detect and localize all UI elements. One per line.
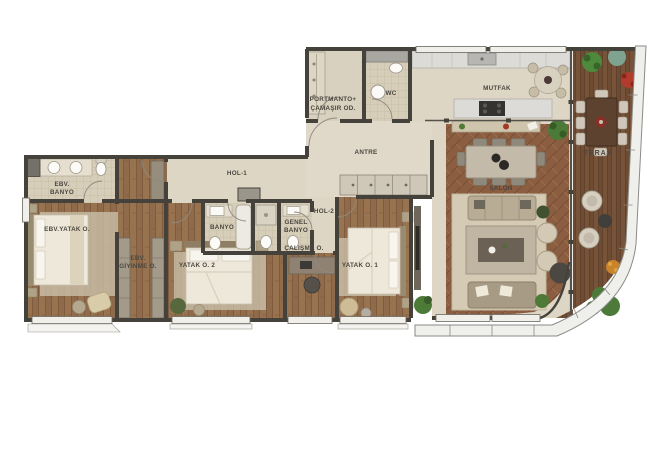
sink-icon [70,162,82,174]
lounge-cushion [584,233,595,244]
pillow [389,261,398,288]
room-label-antre: ANTRE [355,149,378,156]
table-tray [478,238,524,262]
pouf [194,305,205,316]
toilet-icon [390,63,403,73]
plant-icon [170,298,186,314]
desk-chair [304,277,320,293]
plant-icon [459,124,465,130]
room-label-mutfak: MUTFAK [483,85,511,92]
room-label-ebv-giyinme-2: GİYİNME O. [119,262,157,270]
room-label-ebv-banyo-2: BANYO [50,189,74,196]
pillow [474,200,485,209]
table-deco [544,76,552,84]
sink-icon [48,162,60,174]
deco-flower [489,247,496,254]
plant-icon [582,52,602,72]
room-label-ebv-yatak: EBV.YATAK O. [44,226,90,233]
room-label-genel-banyo-2: BANYO [284,227,308,234]
room-label-yatak1: YATAK O. 1 [342,262,379,269]
sink-icon [371,85,385,99]
room-label-hol2: HOL-2 [314,208,334,215]
pouf [73,301,86,314]
laptop-icon [300,261,312,269]
toilet-icon [261,236,272,249]
sideboard [452,121,540,132]
pillow [36,251,45,279]
pillow [389,232,398,259]
dining-set [457,139,545,186]
room-label-ebv-giyinme-1: EBV. [130,255,145,262]
partition-post [444,119,449,123]
bed-headboard [27,214,34,286]
room-label-banyo: BANYO [210,224,234,231]
plant-icon [537,206,550,219]
room-label-yatak2: YATAK O. 2 [179,262,216,269]
toilet-icon [210,237,221,250]
room-label-wc: WC [386,90,397,97]
vanity [38,159,92,176]
room-label-hol1: HOL-1 [227,170,247,177]
side-table [598,214,612,228]
pillow [520,200,531,209]
toilet-icon [96,163,106,176]
plant-leaf [424,296,432,304]
plant-icon [535,294,549,308]
room-label-genel-banyo-1: GENEL [285,219,308,226]
wc-counter [366,51,408,62]
drain [264,213,268,217]
plant-icon [548,120,568,140]
sink-icon [210,207,224,216]
nightstand [170,241,182,251]
chair [528,63,538,73]
tv-icon [416,226,420,270]
rattan-chair [340,298,358,316]
pillow [475,285,489,297]
lounge-cushion [587,196,598,207]
window-sills [28,324,408,332]
room-label-portmanto-1: PORTMANTO+ [310,96,357,103]
room-label-portmanto-2: ÇAMAŞIR OD. [310,105,355,112]
room-label-teras: TERAS [584,150,613,157]
floor-plan-canvas: EBV. BANYO EBV.YATAK O. EBV. GİYİNME O. … [0,0,660,466]
room-label-salon: SALON [489,185,512,192]
floor-plan-svg: EBV. BANYO EBV.YATAK O. EBV. GİYİNME O. … [0,0,660,466]
room-label-ebv-banyo-1: EBV. [54,181,69,188]
room-label-calisma: ÇALIŞMA O. [284,245,323,252]
faucet [480,57,483,60]
shower-icon [27,158,40,177]
pillow [36,219,45,247]
deco-sprig [503,244,508,249]
pillow [499,285,512,297]
deco [503,124,509,130]
sink-icon [287,207,300,215]
closet-row [340,175,427,195]
partition-post [506,119,511,123]
bathtub-icon [236,205,251,249]
cooktop-icon [479,101,505,116]
